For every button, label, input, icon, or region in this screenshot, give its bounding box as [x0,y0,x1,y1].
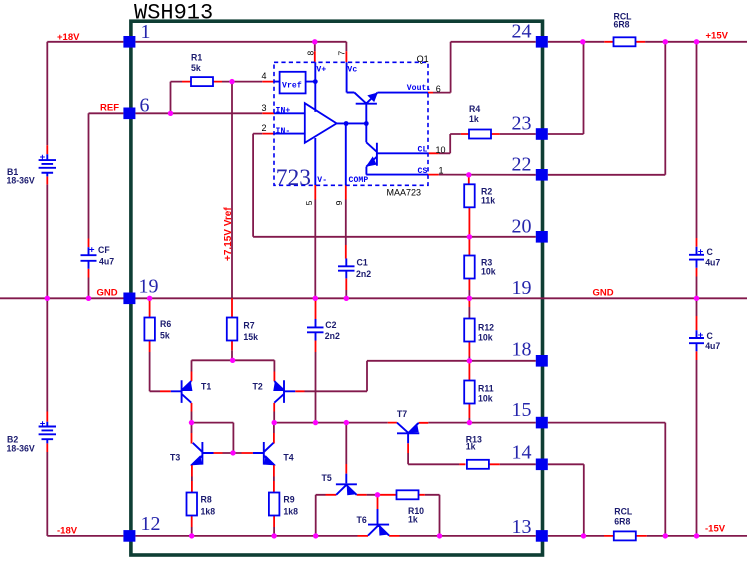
svg-text:+18V: +18V [57,32,80,43]
svg-text:2: 2 [262,123,267,133]
svg-text:1: 1 [439,165,444,175]
svg-text:10k: 10k [481,267,496,277]
svg-text:18-36V: 18-36V [7,443,35,453]
svg-text:GND: GND [97,287,118,298]
svg-text:T1: T1 [201,381,211,391]
svg-text:T5: T5 [322,473,332,483]
svg-text:R1: R1 [191,52,202,62]
svg-text:6R8: 6R8 [614,516,630,526]
svg-text:1: 1 [141,21,151,43]
svg-text:V+: V+ [316,66,326,75]
svg-text:4: 4 [262,71,267,81]
svg-text:C: C [707,247,714,257]
svg-text:T3: T3 [170,453,180,463]
svg-text:Vref: Vref [282,82,302,91]
svg-text:1k: 1k [408,515,418,525]
svg-text:R7: R7 [243,320,254,330]
svg-text:6: 6 [140,94,150,116]
svg-text:5: 5 [304,200,314,205]
svg-text:19: 19 [139,276,159,298]
svg-text:18: 18 [512,338,532,360]
svg-text:9: 9 [334,200,344,205]
svg-text:10k: 10k [478,393,493,403]
svg-text:+7.15V Vref: +7.15V Vref [223,207,234,261]
svg-text:20: 20 [512,215,532,237]
svg-text:IN+: IN+ [276,106,291,115]
svg-text:R9: R9 [283,494,294,504]
svg-text:REF: REF [100,103,119,114]
svg-text:+: + [698,247,704,258]
svg-text:V-: V- [317,176,327,185]
svg-text:Vc: Vc [347,66,357,75]
svg-text:1k: 1k [469,114,479,124]
svg-text:C1: C1 [357,258,368,268]
svg-text:T7: T7 [397,409,407,419]
svg-text:C: C [707,331,714,341]
svg-text:10: 10 [436,145,446,155]
svg-text:723: 723 [276,165,311,191]
svg-text:RCL: RCL [614,507,633,517]
svg-text:24: 24 [512,20,532,42]
svg-text:4u7: 4u7 [705,341,720,351]
svg-text:CF: CF [98,245,110,255]
svg-text:8: 8 [306,51,316,56]
svg-text:-15V: -15V [705,523,726,534]
svg-text:+: + [40,418,46,429]
svg-text:1k8: 1k8 [201,506,216,516]
svg-text:+: + [40,152,46,163]
svg-text:MAA723: MAA723 [387,188,422,198]
svg-text:2n2: 2n2 [325,331,340,341]
svg-text:T2: T2 [253,381,263,391]
svg-text:GND: GND [593,287,614,298]
svg-text:IN-: IN- [276,127,291,136]
svg-text:-18V: -18V [57,525,78,536]
svg-text:5k: 5k [160,331,170,341]
svg-text:2n2: 2n2 [356,269,371,279]
svg-text:4u7: 4u7 [705,258,720,268]
svg-text:15: 15 [512,399,532,421]
svg-text:1k: 1k [466,442,476,452]
svg-text:13: 13 [512,516,532,538]
svg-text:12: 12 [141,513,161,535]
svg-text:23: 23 [512,113,532,135]
svg-text:3: 3 [262,103,267,113]
svg-text:15k: 15k [243,332,258,342]
svg-text:T4: T4 [283,453,293,463]
svg-text:R11: R11 [478,383,494,393]
svg-text:+: + [89,244,95,255]
svg-text:Q1: Q1 [417,54,429,64]
svg-text:18-36V: 18-36V [7,176,35,186]
svg-text:6R8: 6R8 [614,19,630,29]
svg-text:11k: 11k [481,196,495,206]
svg-text:C2: C2 [325,320,336,330]
svg-text:R4: R4 [469,104,480,114]
svg-text:10k: 10k [478,333,493,343]
svg-text:T6: T6 [357,515,367,525]
svg-text:22: 22 [512,153,532,175]
svg-text:CS: CS [418,167,428,176]
svg-text:Vout.: Vout. [407,84,432,93]
svg-text:COMP: COMP [349,176,369,185]
svg-text:R12: R12 [478,323,494,333]
svg-text:19: 19 [512,277,532,299]
svg-text:14: 14 [512,441,532,463]
svg-text:7: 7 [337,51,347,56]
svg-text:6: 6 [436,84,441,94]
svg-text:5k: 5k [191,63,201,73]
svg-text:R6: R6 [160,319,171,329]
svg-text:1k8: 1k8 [283,506,298,516]
svg-text:4u7: 4u7 [99,256,114,266]
svg-text:+15V: +15V [706,30,729,41]
svg-text:R8: R8 [201,494,212,504]
svg-text:CL: CL [418,145,428,154]
svg-text:+: + [698,330,704,341]
